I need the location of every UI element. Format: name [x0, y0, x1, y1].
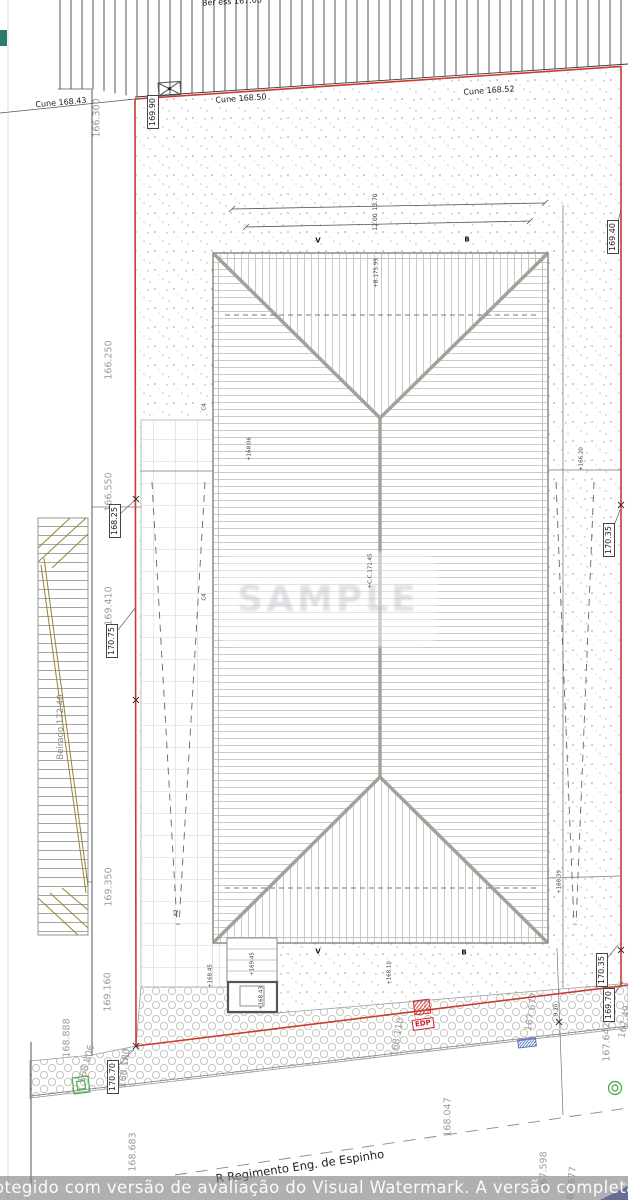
boxed-elev-17075: 170.75: [106, 624, 118, 658]
watermark-bar-text: otegido com versão de avaliação do Visua…: [0, 1178, 628, 1197]
spot-elev-cc17145: +C.C.171.45: [368, 553, 374, 588]
spot-elev-ridge-17599: +B.175.99: [374, 258, 380, 287]
boxed-elev-17035-a: 170.35: [603, 523, 615, 557]
section-marker-b-top: B: [464, 237, 469, 244]
spot-elev-16806: +168.06: [247, 437, 253, 461]
elev-169160: 169.160: [103, 972, 113, 1011]
dim-920: 9.20: [554, 1004, 560, 1016]
elev-168683: 168.683: [128, 1132, 138, 1171]
spot-elev-16845: +168.45: [208, 964, 214, 988]
spot-elev-16839: +168.39: [557, 870, 563, 894]
elev-167642: 167.642: [602, 1022, 612, 1061]
boxed-elev-17035-b: 170.35: [596, 953, 608, 987]
elev-169350: 169.350: [104, 867, 114, 906]
boxed-elev-16825: 168.25: [109, 504, 121, 538]
section-marker-v-top: V: [315, 238, 320, 245]
spot-elev-16843: +168.43: [259, 986, 265, 1010]
marker-c4-a: C4: [202, 403, 208, 410]
spot-label-x2: X2: [174, 909, 180, 916]
edp-hatched-box: [413, 999, 431, 1015]
elev-166250: 166.250: [104, 340, 114, 379]
center-watermark: SAMPLE: [218, 552, 438, 647]
boxed-elev-16970: 169.70: [603, 988, 615, 1022]
dim-1200: 12.00: [373, 213, 379, 230]
watermark-bar: otegido com versão de avaliação do Visua…: [0, 1176, 628, 1200]
watermark-corner-mark: [0, 30, 7, 46]
elev-169410: 169.410: [104, 586, 114, 625]
boxed-elev-16940: 169.40: [607, 220, 619, 254]
elev-168888: 168.888: [62, 1018, 72, 1057]
boxed-elev-16990: 169.90: [147, 95, 159, 129]
marker-c4-b: C4: [202, 593, 208, 600]
survey-circle-green: [609, 1082, 622, 1095]
site-plan-canvas: Ber ess 167.00Cune 168.43Cune 168.50Cune…: [0, 0, 628, 1200]
elev-166300: 166.300: [92, 98, 102, 137]
spot-elev-16945: +169.45: [250, 952, 256, 976]
section-marker-b-bottom: B: [461, 950, 466, 957]
beirado-label: Beirado 172.40: [57, 694, 66, 759]
elev-168047: 168.047: [443, 1097, 453, 1136]
water-utility-box: [518, 1038, 537, 1048]
dim-1370: 13.70: [373, 193, 379, 210]
section-marker-v-bottom: V: [315, 949, 320, 956]
spot-elev-16810: +168.10: [387, 961, 393, 985]
boxed-elev-17070: 170.70: [107, 1060, 119, 1094]
street-centerline: [175, 1108, 628, 1175]
spot-elev-16620: +166.20: [579, 447, 585, 471]
